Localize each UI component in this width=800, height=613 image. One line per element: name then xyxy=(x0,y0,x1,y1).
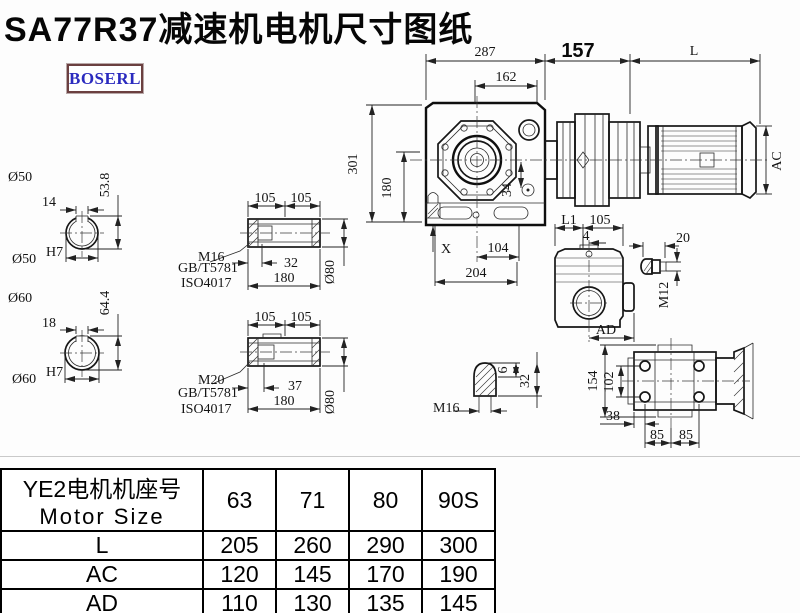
cell-L-90s: 300 xyxy=(422,531,495,560)
plug-len: 32 xyxy=(518,374,533,388)
shaft50-key-width: 14 xyxy=(42,195,56,210)
technical-drawing: 287 162 157 L AC 301 180 34 X 104 xyxy=(0,0,800,468)
dim-104: 104 xyxy=(488,241,509,256)
cell-AD-90s: 145 xyxy=(422,589,495,613)
dim-157: 157 xyxy=(561,40,594,62)
rear-view: 154 102 38 85 85 xyxy=(586,338,753,448)
hsb-dia: Ø80 xyxy=(323,390,338,414)
dim-162: 162 xyxy=(496,70,517,85)
dim-287: 287 xyxy=(475,45,496,60)
shaft50-bore: Ø50 xyxy=(12,252,36,267)
drawing-sheet: SA77R37减速机电机尺寸图纸 BOSERL xyxy=(0,0,800,613)
hsa-dia: Ø80 xyxy=(323,260,338,284)
cell-AD-63: 110 xyxy=(203,589,276,613)
rear-38: 38 xyxy=(606,409,620,424)
cell-AC-90s: 190 xyxy=(422,560,495,589)
hsb-depth: 37 xyxy=(288,379,302,394)
dim-180: 180 xyxy=(380,178,395,199)
hsa-depth: 32 xyxy=(284,256,298,271)
side-view: L1 105 4 AD xyxy=(555,213,634,342)
bolt-detail: 20 M12 xyxy=(629,231,690,308)
motor-size-table: YE2电机机座号 Motor Size 63 71 80 90S L 205 2… xyxy=(0,468,496,613)
rear-154: 154 xyxy=(586,371,601,392)
hsa-total: 180 xyxy=(274,271,295,286)
hsa-std2: ISO4017 xyxy=(181,276,232,291)
hsb-len1: 105 xyxy=(255,310,276,325)
row-label-AC: AC xyxy=(1,560,203,589)
shaft60-height: 64.4 xyxy=(98,291,113,316)
shaft50-height: 53.8 xyxy=(98,173,113,198)
table-row-AC: AC 120 145 170 190 xyxy=(1,560,495,589)
cell-L-71: 260 xyxy=(276,531,349,560)
row-label-L: L xyxy=(1,531,203,560)
shaft50-bore-tol: H7 xyxy=(46,245,63,260)
table-header-cn: YE2电机机座号 xyxy=(2,470,202,504)
rear-85a: 85 xyxy=(650,428,664,443)
shaft60-key-width: 18 xyxy=(42,316,56,331)
plug-tip: 6 xyxy=(496,367,511,374)
hollow-shaft-a: 105 105 M16 GB/T5781 ISO4017 32 180 Ø80 xyxy=(178,191,348,291)
hsa-std1: GB/T5781 xyxy=(178,261,238,276)
hsb-std2: ISO4017 xyxy=(181,402,232,417)
sideview-105: 105 xyxy=(590,213,611,228)
shaft50-dia: Ø50 xyxy=(8,170,32,185)
cell-AD-71: 130 xyxy=(276,589,349,613)
bolt-thread: M12 xyxy=(657,282,672,308)
dim-34: 34 xyxy=(500,183,515,197)
dim-204: 204 xyxy=(466,266,487,281)
motor-size-71: 71 xyxy=(276,469,349,531)
table-header-en: Motor Size xyxy=(2,504,202,530)
hsb-std1: GB/T5781 xyxy=(178,386,238,401)
dim-AC: AC xyxy=(770,151,785,170)
table-row-AD: AD 110 130 135 145 xyxy=(1,589,495,613)
motor-size-80: 80 xyxy=(349,469,422,531)
shaft-section-50: Ø50 14 53.8 Ø50 H7 xyxy=(8,170,122,267)
sideview-4: 4 xyxy=(583,229,590,244)
table-row-L: L 205 260 290 300 xyxy=(1,531,495,560)
cell-AC-80: 170 xyxy=(349,560,422,589)
shaft60-bore-tol: H7 xyxy=(46,365,63,380)
plug-thread: M16 xyxy=(433,401,459,416)
table-header-row: YE2电机机座号 Motor Size 63 71 80 90S xyxy=(1,469,495,531)
hsb-total: 180 xyxy=(274,394,295,409)
sideview-l1: L1 xyxy=(561,213,577,228)
motor-size-63: 63 xyxy=(203,469,276,531)
sideview-ad: AD xyxy=(596,323,616,338)
dim-X: X xyxy=(441,242,451,257)
shaft60-bore: Ø60 xyxy=(12,372,36,387)
row-label-AD: AD xyxy=(1,589,203,613)
cell-AC-71: 145 xyxy=(276,560,349,589)
hsb-len2: 105 xyxy=(291,310,312,325)
rear-102: 102 xyxy=(602,372,617,393)
cell-L-80: 290 xyxy=(349,531,422,560)
cell-AD-80: 135 xyxy=(349,589,422,613)
dim-301: 301 xyxy=(346,154,361,175)
dim-L: L xyxy=(690,44,699,59)
cell-AC-63: 120 xyxy=(203,560,276,589)
plug-detail: M16 6 32 xyxy=(433,352,542,416)
motor-size-90s: 90S xyxy=(422,469,495,531)
cell-L-63: 205 xyxy=(203,531,276,560)
shaft-section-60: Ø60 18 64.4 Ø60 H7 xyxy=(8,291,122,387)
shaft60-dia: Ø60 xyxy=(8,291,32,306)
bolt-len: 20 xyxy=(676,231,690,246)
hsa-len2: 105 xyxy=(291,191,312,206)
hsa-len1: 105 xyxy=(255,191,276,206)
rear-85b: 85 xyxy=(679,428,693,443)
table-header-cell: YE2电机机座号 Motor Size xyxy=(1,469,203,531)
hollow-shaft-b: 105 105 M20 GB/T5781 ISO4017 37 180 Ø80 xyxy=(178,310,348,417)
table-top-rule xyxy=(0,456,800,457)
